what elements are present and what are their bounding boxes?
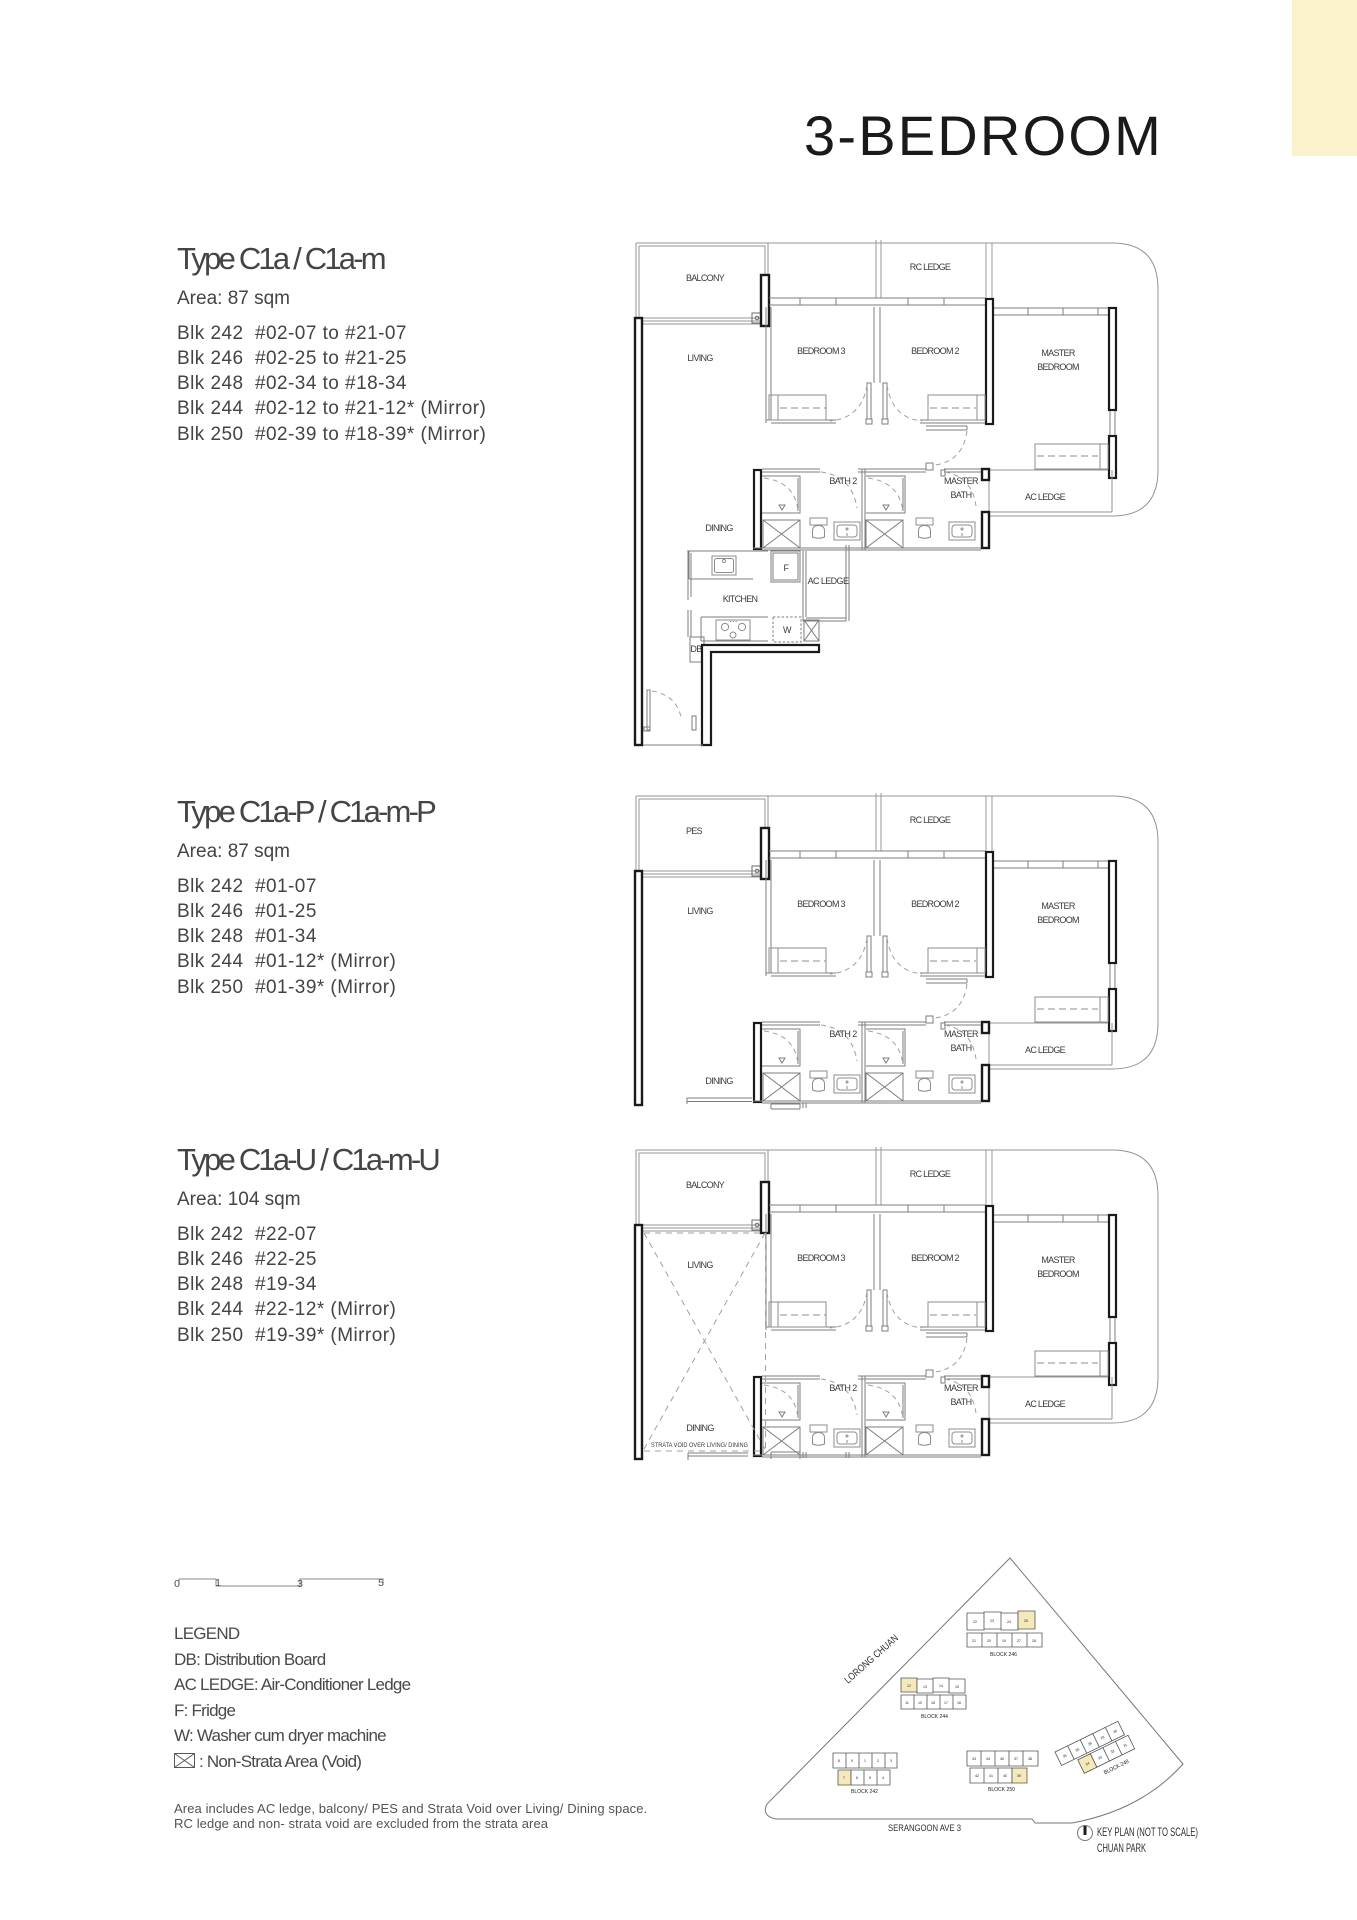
svg-text:14: 14 xyxy=(939,1684,943,1688)
svg-text:6: 6 xyxy=(856,1776,858,1780)
svg-text:DINING: DINING xyxy=(705,523,733,533)
svg-text:18: 18 xyxy=(931,1701,935,1705)
svg-text:10: 10 xyxy=(918,1701,922,1705)
svg-text:16: 16 xyxy=(957,1701,961,1705)
svg-text:41: 41 xyxy=(989,1774,993,1778)
svg-text:45: 45 xyxy=(1000,1757,1004,1761)
svg-text:CHUAN PARK: CHUAN PARK xyxy=(1097,1841,1146,1855)
svg-text:19: 19 xyxy=(1002,1639,1006,1643)
svg-text:0: 0 xyxy=(174,1578,180,1590)
svg-text:39: 39 xyxy=(1017,1774,1021,1778)
svg-text:21: 21 xyxy=(972,1639,976,1643)
svg-text:20: 20 xyxy=(987,1639,991,1643)
svg-text:15: 15 xyxy=(955,1685,959,1689)
svg-text:F: F xyxy=(784,563,790,573)
svg-text:13: 13 xyxy=(923,1685,927,1689)
svg-text:25: 25 xyxy=(1024,1619,1028,1623)
svg-text:KITCHEN: KITCHEN xyxy=(723,594,758,604)
svg-text:7: 7 xyxy=(843,1776,845,1780)
svg-text:38: 38 xyxy=(1028,1757,1032,1761)
svg-text:BLOCK 242: BLOCK 242 xyxy=(851,1789,878,1795)
svg-text:DINING: DINING xyxy=(686,1423,714,1433)
svg-text:1: 1 xyxy=(864,1759,866,1763)
svg-text:LORONG CHUAN: LORONG CHUAN xyxy=(843,1633,901,1686)
svg-text:2: 2 xyxy=(877,1759,879,1763)
svg-text:W: W xyxy=(783,625,792,635)
svg-text:BALCONY: BALCONY xyxy=(686,273,725,283)
svg-text:44: 44 xyxy=(986,1757,990,1761)
svg-text:27: 27 xyxy=(1017,1639,1021,1643)
svg-text:8: 8 xyxy=(838,1759,840,1763)
svg-text:43: 43 xyxy=(972,1757,976,1761)
svg-text:BLOCK 244: BLOCK 244 xyxy=(921,1714,948,1720)
svg-text:BLOCK 246: BLOCK 246 xyxy=(990,1652,1017,1658)
svg-text:STRATA VOID OVER LIVING/ DININ: STRATA VOID OVER LIVING/ DINING xyxy=(651,1443,748,1449)
svg-text:3: 3 xyxy=(297,1578,303,1590)
svg-text:12: 12 xyxy=(907,1684,911,1688)
svg-text:23: 23 xyxy=(990,1619,994,1623)
svg-text:AC LEDGE: AC LEDGE xyxy=(808,576,849,586)
svg-text:40: 40 xyxy=(1003,1774,1007,1778)
svg-text:26: 26 xyxy=(1032,1639,1036,1643)
svg-text:4: 4 xyxy=(882,1776,884,1780)
svg-text:3: 3 xyxy=(890,1759,892,1763)
svg-text:5: 5 xyxy=(869,1776,871,1780)
svg-text:SERANGOON AVE 3: SERANGOON AVE 3 xyxy=(888,1823,961,1834)
svg-text:1: 1 xyxy=(215,1577,221,1589)
svg-text:9: 9 xyxy=(851,1759,853,1763)
svg-text:37: 37 xyxy=(1014,1757,1018,1761)
svg-text:KEY PLAN (NOT TO SCALE): KEY PLAN (NOT TO SCALE) xyxy=(1097,1825,1198,1839)
svg-text:BALCONY: BALCONY xyxy=(686,1180,725,1190)
svg-text:PES: PES xyxy=(686,826,703,836)
svg-text:DB: DB xyxy=(690,644,702,654)
svg-text:11: 11 xyxy=(905,1701,909,1705)
svg-text:BLOCK 250: BLOCK 250 xyxy=(988,1787,1015,1793)
svg-text:42: 42 xyxy=(975,1774,979,1778)
svg-text:DINING: DINING xyxy=(705,1076,733,1086)
svg-text:17: 17 xyxy=(944,1701,948,1705)
svg-text:5: 5 xyxy=(378,1577,384,1589)
svg-text:24: 24 xyxy=(1007,1620,1011,1624)
svg-text:22: 22 xyxy=(973,1620,977,1624)
